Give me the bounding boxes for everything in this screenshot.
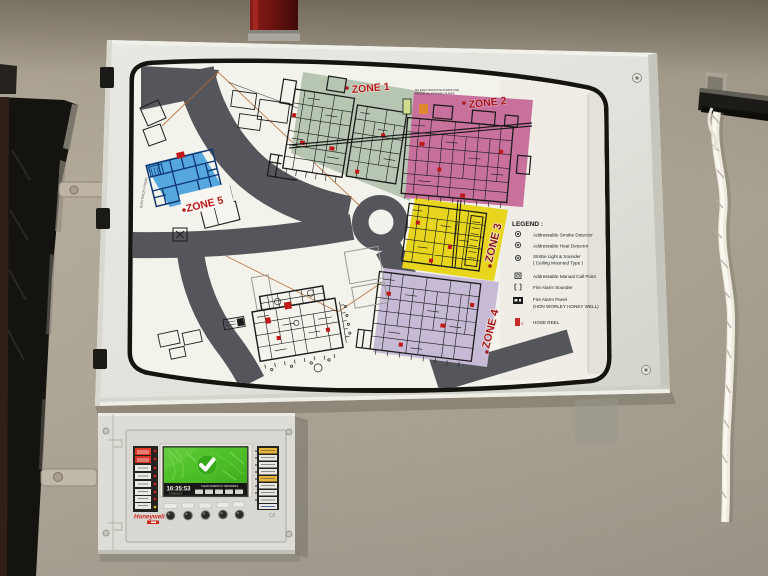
svg-text:LEGEND :: LEGEND : — [512, 221, 543, 228]
svg-text:(HON WORLEY HONEY WELL): (HON WORLEY HONEY WELL) — [533, 304, 599, 309]
svg-text:HOUSE OIL STANDBY PUMPS: HOUSE OIL STANDBY PUMPS — [415, 92, 455, 96]
svg-text:CLEAR KERENTCN TERHAMPAS: CLEAR KERENTCN TERHAMPAS — [201, 485, 239, 488]
svg-text:( Ceiling Mounted Type ): ( Ceiling Mounted Type ) — [533, 261, 583, 266]
svg-text:Fire Alarm Panel: Fire Alarm Panel — [533, 297, 567, 302]
svg-text:Strobe Light & Sounder: Strobe Light & Sounder — [533, 254, 581, 259]
svg-text:HOSE REEL: HOSE REEL — [533, 320, 560, 325]
svg-text:Honeywell: Honeywell — [134, 514, 165, 521]
svg-text:Addressable Smoke Detector: Addressable Smoke Detector — [533, 233, 593, 238]
svg-text:Addressable Manual Call Point: Addressable Manual Call Point — [533, 274, 597, 279]
svg-text:Addressable Heat Detector: Addressable Heat Detector — [533, 244, 589, 249]
svg-text:Fire Alarm Sounder: Fire Alarm Sounder — [533, 285, 573, 290]
svg-text:17/10/2023: 17/10/2023 — [169, 492, 183, 496]
svg-text:C€: C€ — [269, 513, 276, 519]
